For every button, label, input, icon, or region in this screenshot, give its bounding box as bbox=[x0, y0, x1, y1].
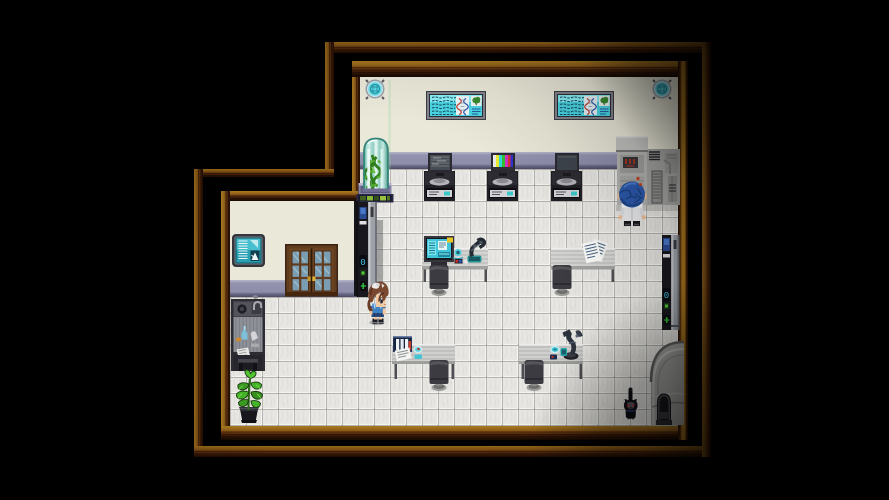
svg-text:0: 0 bbox=[360, 258, 365, 268]
svg-text:0: 0 bbox=[664, 291, 669, 301]
